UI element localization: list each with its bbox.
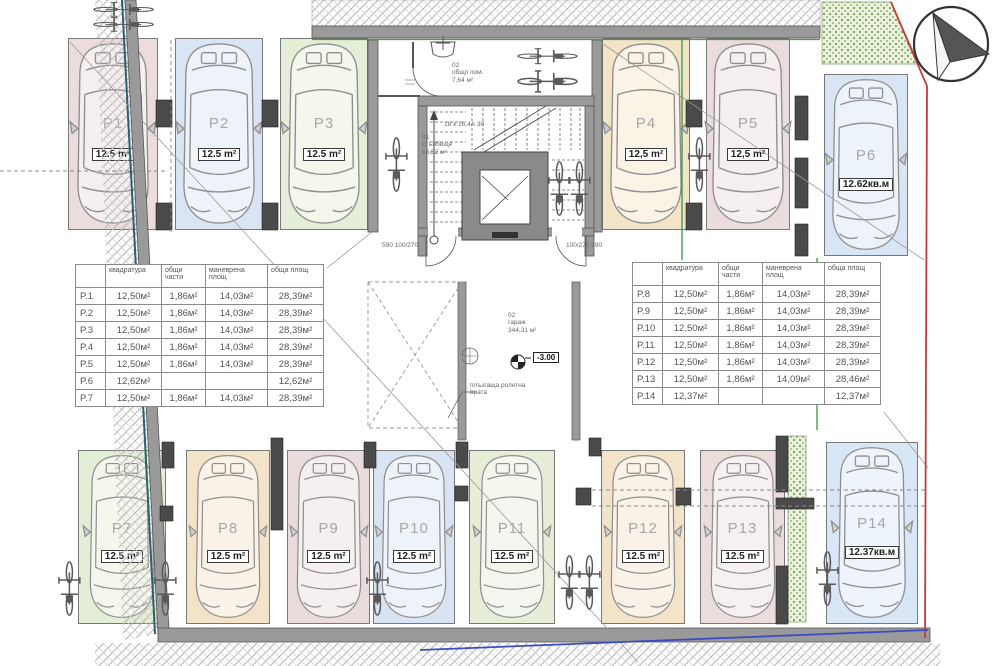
table-cell: 28,46м² (825, 371, 881, 388)
stall-label: P11 (470, 520, 554, 537)
row-label: P.9 (633, 303, 663, 320)
table-cell: 14,03м² (763, 303, 825, 320)
door-dim-right: 100/270 590 (566, 242, 602, 249)
table-row: P.412,50м²1,86м²14,03м²28,39м² (76, 339, 324, 356)
car-icon (704, 41, 792, 226)
table-cell: 28,39м² (268, 356, 324, 373)
table-cell: 14,03м² (206, 339, 268, 356)
stall-area-value: 12.5 m² (721, 550, 763, 563)
table-cell: 14,09м² (763, 371, 825, 388)
table-row: P.512,50м²1,86м²14,03м²28,39м² (76, 356, 324, 373)
table-cell: 1,86м² (719, 286, 763, 303)
table-cell: 1,86м² (719, 354, 763, 371)
stall-area-value: 12,5 m² (727, 148, 769, 161)
table-row: P.112,50м²1,86м²14,03м²28,39м² (76, 288, 324, 305)
door-label: плъзгаща ролетна врата (470, 382, 525, 397)
table-row: P.1112,50м²1,86м²14,03м²28,39м² (633, 337, 881, 354)
table-cell (206, 373, 268, 390)
table-row: P.912,50м²1,86м²14,03м²28,39м² (633, 303, 881, 320)
table-cell: 28,39м² (825, 354, 881, 371)
car-icon (831, 445, 914, 620)
stall-area-value: 12.5 m² (101, 550, 143, 563)
stall-label: P14 (827, 515, 917, 532)
row-label: P.6 (76, 373, 106, 390)
stair-steps-note: 18 х 16,4А 30 (444, 121, 484, 128)
stall-label: P7 (79, 520, 165, 537)
table-cell: 1,86м² (162, 322, 206, 339)
table-cell: 1,86м² (162, 288, 206, 305)
stall-area: 12.5 m² (374, 546, 454, 564)
table-cell: 12,50м² (663, 371, 719, 388)
stall-label: P9 (288, 520, 369, 537)
row-label: P.4 (76, 339, 106, 356)
table-cell: 28,39м² (268, 339, 324, 356)
table-cell: 12,50м² (106, 322, 162, 339)
row-label: P.10 (633, 320, 663, 337)
parking-table-right: квадратураобщи частиманеврена площобща п… (632, 262, 881, 405)
room-name: стълбище (422, 141, 452, 148)
stall-area: 12.5 m² (79, 546, 165, 564)
table-cell: 28,39м² (825, 286, 881, 303)
car-icon (69, 41, 157, 226)
column-header: квадратура (106, 265, 162, 288)
parking-stall-p7: P7 12.5 m² (78, 450, 166, 624)
table-cell: 1,86м² (162, 390, 206, 407)
room-label-common: 02 общо пом. 7,64 м² (452, 62, 483, 84)
table-cell: 1,86м² (719, 320, 763, 337)
parking-stall-p2: P2 12.5 m² (175, 38, 263, 230)
stall-label: P3 (281, 115, 367, 132)
row-label: P.7 (76, 390, 106, 407)
table-cell: 28,39м² (825, 337, 881, 354)
stall-area-value: 12.37кв.м (845, 546, 899, 559)
stall-label: P12 (602, 520, 684, 537)
table-cell: 12,50м² (106, 339, 162, 356)
table-cell: 12,50м² (663, 286, 719, 303)
table-cell: 12,50м² (106, 390, 162, 407)
table-cell: 14,03м² (206, 305, 268, 322)
stall-area: 12.5 m² (281, 144, 367, 162)
row-label: P.8 (633, 286, 663, 303)
stall-area-value: 12.5 m² (491, 550, 533, 563)
table-cell: 12,62м² (268, 373, 324, 390)
table-cell: 1,86м² (162, 356, 206, 373)
stall-area: 12.5 m² (602, 546, 684, 564)
room-number: 02 (508, 312, 536, 319)
parking-stall-p12: P12 12.5 m² (601, 450, 685, 624)
table-cell: 14,03м² (206, 322, 268, 339)
table-cell: 12,50м² (106, 288, 162, 305)
stall-area-value: 12.5 m² (307, 550, 349, 563)
table-row: P.812,50м²1,86м²14,03м²28,39м² (633, 286, 881, 303)
stall-area: 12,5 m² (603, 144, 689, 162)
car-icon (602, 41, 690, 226)
table-cell (719, 388, 763, 405)
table-cell: 1,86м² (719, 371, 763, 388)
table-cell: 28,39м² (268, 305, 324, 322)
stall-label: P5 (707, 115, 789, 132)
table-row: P.1012,50м²1,86м²14,03м²28,39м² (633, 320, 881, 337)
stall-label: P10 (374, 520, 454, 537)
parking-stall-p6: P6 12.62кв.м (824, 74, 908, 256)
table-row: P.312,50м²1,86м²14,03м²28,39м² (76, 322, 324, 339)
stall-area: 12.5 m² (470, 546, 554, 564)
table-row: P.712,50м²1,86м²14,03м²28,39м² (76, 390, 324, 407)
room-name: общо пом. (452, 69, 483, 76)
parking-stall-p3: P3 12.5 m² (280, 38, 368, 230)
table-cell: 12,37м² (825, 388, 881, 405)
stall-area-value: 12.5 m² (198, 148, 240, 161)
stall-area: 12.5 m² (187, 546, 269, 564)
column-header: общи части (162, 265, 206, 288)
table-row: P.212,50м²1,86м²14,03м²28,39м² (76, 305, 324, 322)
stall-area-value: 12.5 m² (393, 550, 435, 563)
dimension-table: квадратураобщи частиманеврена площобща п… (75, 264, 324, 407)
table-cell: 12,50м² (663, 303, 719, 320)
parking-stall-p14: P14 12.37кв.м (826, 442, 918, 624)
level-marker-value: -3.00 (533, 352, 559, 363)
table-cell: 1,86м² (162, 305, 206, 322)
table-cell: 1,86м² (719, 303, 763, 320)
column-header: маневрена площ (206, 265, 268, 288)
room-area: 16,52 м² (422, 149, 452, 156)
stall-label: P2 (176, 115, 262, 132)
table-cell: 14,03м² (763, 354, 825, 371)
column-header: квадратура (663, 263, 719, 286)
table-cell: 14,03м² (763, 286, 825, 303)
table-cell: 12,37м² (663, 388, 719, 405)
parking-stall-p8: P8 12.5 m² (186, 450, 270, 624)
stall-area: 12.5 m² (176, 144, 262, 162)
stall-area: 12.5 m² (701, 546, 784, 564)
table-row: P.612,62м²12,62м² (76, 373, 324, 390)
room-area: 7,64 м² (452, 77, 483, 84)
parking-stall-p10: P10 12.5 m² (373, 450, 455, 624)
door-dim-left: 590 100/270 (382, 242, 418, 249)
parking-stall-p13: P13 12.5 m² (700, 450, 785, 624)
stall-label: P13 (701, 520, 784, 537)
table-cell: 14,03м² (206, 356, 268, 373)
table-cell (763, 388, 825, 405)
parking-table-left: квадратураобщи частиманеврена площобща п… (75, 264, 324, 407)
row-label: P.11 (633, 337, 663, 354)
stall-area-value: 12.5 m² (207, 550, 249, 563)
row-label: P.5 (76, 356, 106, 373)
table-cell: 28,39м² (825, 320, 881, 337)
row-label: P.12 (633, 354, 663, 371)
stall-label: P8 (187, 520, 269, 537)
stall-area: 12.62кв.м (825, 174, 907, 192)
stall-label: P6 (825, 147, 907, 164)
stall-area-value: 12.5 m² (92, 148, 134, 161)
table-cell: 14,03м² (206, 288, 268, 305)
table-cell: 12,50м² (663, 354, 719, 371)
car-icon (280, 41, 368, 226)
dimension-table: квадратураобщи частиманеврена площобща п… (632, 262, 881, 405)
column-header: обща площ (268, 265, 324, 288)
stall-area: 12.37кв.м (827, 542, 917, 560)
column-header (76, 265, 106, 288)
column-header: обща площ (825, 263, 881, 286)
stall-area-value: 12,5 m² (625, 148, 667, 161)
table-cell: 14,03м² (763, 320, 825, 337)
table-cell (162, 373, 206, 390)
parking-stall-p4: P4 12,5 m² (602, 38, 690, 230)
table-cell: 1,86м² (162, 339, 206, 356)
room-name: гараж (508, 319, 536, 326)
room-label-garage: 02 гараж 344,31 м² (508, 312, 536, 334)
column-header (633, 263, 663, 286)
parking-stall-p5: P5 12,5 m² (706, 38, 790, 230)
parking-stall-p9: P9 12.5 m² (287, 450, 370, 624)
table-cell: 14,03м² (206, 390, 268, 407)
parking-stall-p11: P11 12.5 m² (469, 450, 555, 624)
row-label: P.2 (76, 305, 106, 322)
stall-area-value: 12.62кв.м (839, 178, 893, 191)
stall-label: P1 (69, 115, 157, 132)
column-header: общи части (719, 263, 763, 286)
row-label: P.3 (76, 322, 106, 339)
table-cell: 1,86м² (719, 337, 763, 354)
stall-area-value: 12.5 m² (303, 148, 345, 161)
table-cell: 12,50м² (663, 337, 719, 354)
table-row: P.1212,50м²1,86м²14,03м²28,39м² (633, 354, 881, 371)
row-label: P.13 (633, 371, 663, 388)
stall-area: 12,5 m² (707, 144, 789, 162)
column-header: маневрена площ (763, 263, 825, 286)
floor-plan: P1 12.5 m² P2 12.5 m² P3 12.5 m² (0, 0, 1000, 666)
table-cell: 12,62м² (106, 373, 162, 390)
table-cell: 28,39м² (268, 390, 324, 407)
table-cell: 28,39м² (825, 303, 881, 320)
stall-area: 12.5 m² (288, 546, 369, 564)
table-cell: 28,39м² (268, 322, 324, 339)
parking-stall-p1: P1 12.5 m² (68, 38, 158, 230)
row-label: P.1 (76, 288, 106, 305)
room-area: 344,31 м² (508, 327, 536, 334)
table-cell: 12,50м² (106, 356, 162, 373)
stall-area-value: 12.5 m² (622, 550, 664, 563)
table-row: P.1312,50м²1,86м²14,09м²28,46м² (633, 371, 881, 388)
stall-label: P4 (603, 115, 689, 132)
room-label-staircase: 01 стълбище 16,52 м² (422, 134, 452, 156)
row-label: P.14 (633, 388, 663, 405)
table-cell: 14,03м² (763, 337, 825, 354)
table-cell: 12,50м² (106, 305, 162, 322)
table-row: P.1412,37м²12,37м² (633, 388, 881, 405)
stall-area: 12.5 m² (69, 144, 157, 162)
table-cell: 12,50м² (663, 320, 719, 337)
car-icon (175, 41, 263, 226)
table-cell: 28,39м² (268, 288, 324, 305)
car-icon (825, 77, 908, 252)
